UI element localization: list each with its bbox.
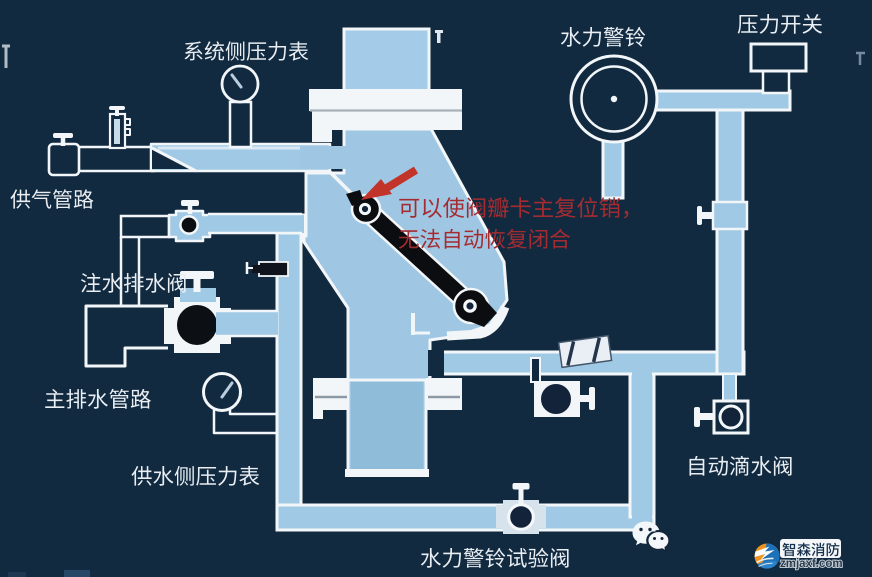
svg-text:zmjaxf.com: zmjaxf.com	[780, 558, 843, 570]
